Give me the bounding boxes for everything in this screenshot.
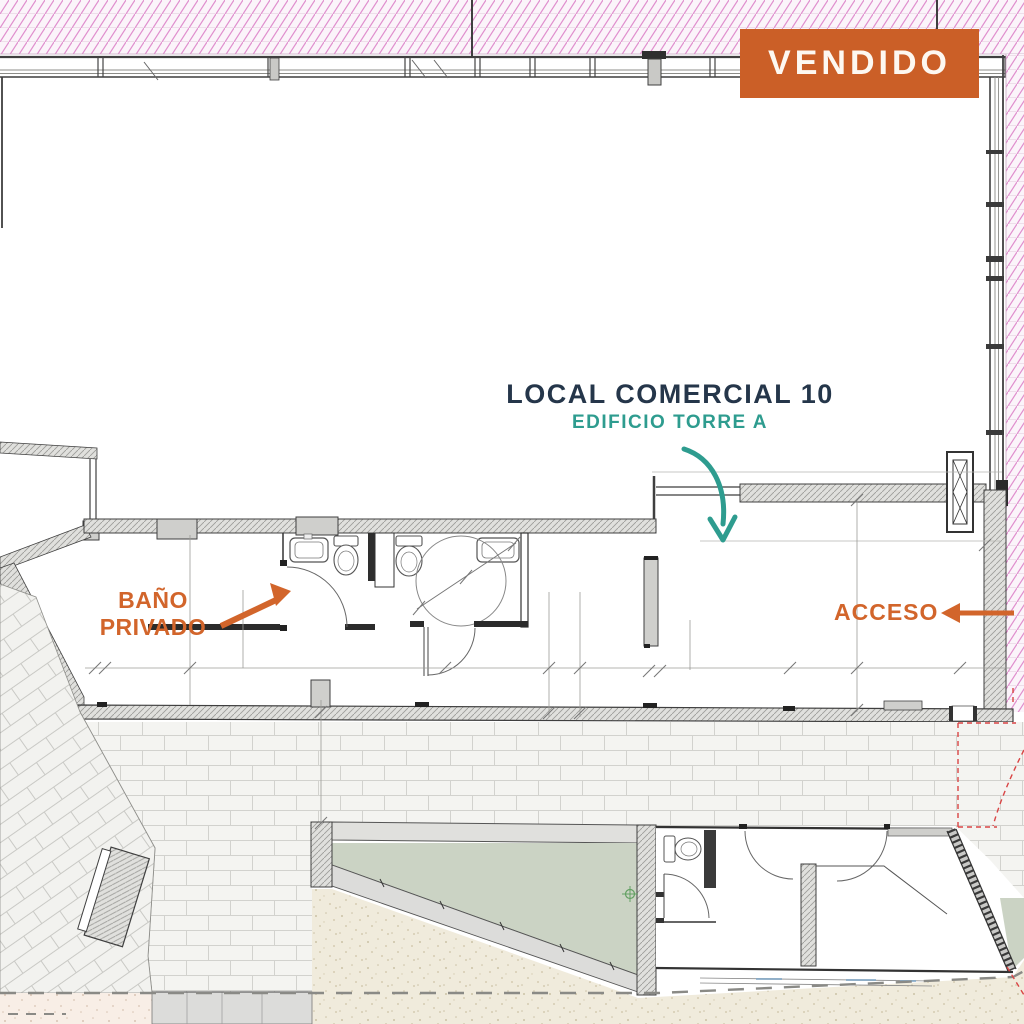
access-callout: ACCESO bbox=[834, 599, 944, 626]
bathroom-arrow bbox=[221, 583, 291, 626]
facade-pier bbox=[648, 59, 661, 85]
concrete-slabs bbox=[152, 992, 312, 1024]
private-bath-callout-line1: BAÑO bbox=[90, 587, 216, 614]
private-bath-callout: BAÑO PRIVADO bbox=[90, 587, 216, 641]
bottom-exterior-wall bbox=[78, 680, 1013, 722]
toilet-symbol-accessible bbox=[396, 536, 422, 576]
private-bath-callout-line2: PRIVADO bbox=[90, 614, 216, 641]
sink-symbol bbox=[290, 534, 328, 562]
interior-wall-slab bbox=[644, 556, 658, 648]
unit-title: LOCAL COMERCIAL 10 bbox=[420, 379, 920, 410]
bath2-door bbox=[424, 627, 475, 676]
structural-column-symbol bbox=[947, 452, 973, 532]
toilet-symbol-bottom bbox=[664, 836, 701, 862]
floor-plan-image: VENDIDO LOCAL COMERCIAL 10 EDIFICIO TORR… bbox=[0, 0, 1024, 1024]
shaft bbox=[375, 533, 394, 587]
right-wall-lower bbox=[984, 490, 1006, 712]
pillar bbox=[311, 680, 330, 707]
floor-plan-drawing bbox=[0, 0, 1024, 1024]
bath1-door-swing bbox=[287, 567, 347, 627]
column bbox=[801, 864, 816, 966]
facade-pier-cap bbox=[642, 51, 666, 59]
turning-circle bbox=[416, 536, 506, 626]
unit-subtitle: EDIFICIO TORRE A bbox=[420, 412, 920, 434]
status-badge: VENDIDO bbox=[740, 29, 979, 98]
toilet-symbol bbox=[334, 536, 358, 575]
bottom-rooms bbox=[656, 824, 1016, 986]
